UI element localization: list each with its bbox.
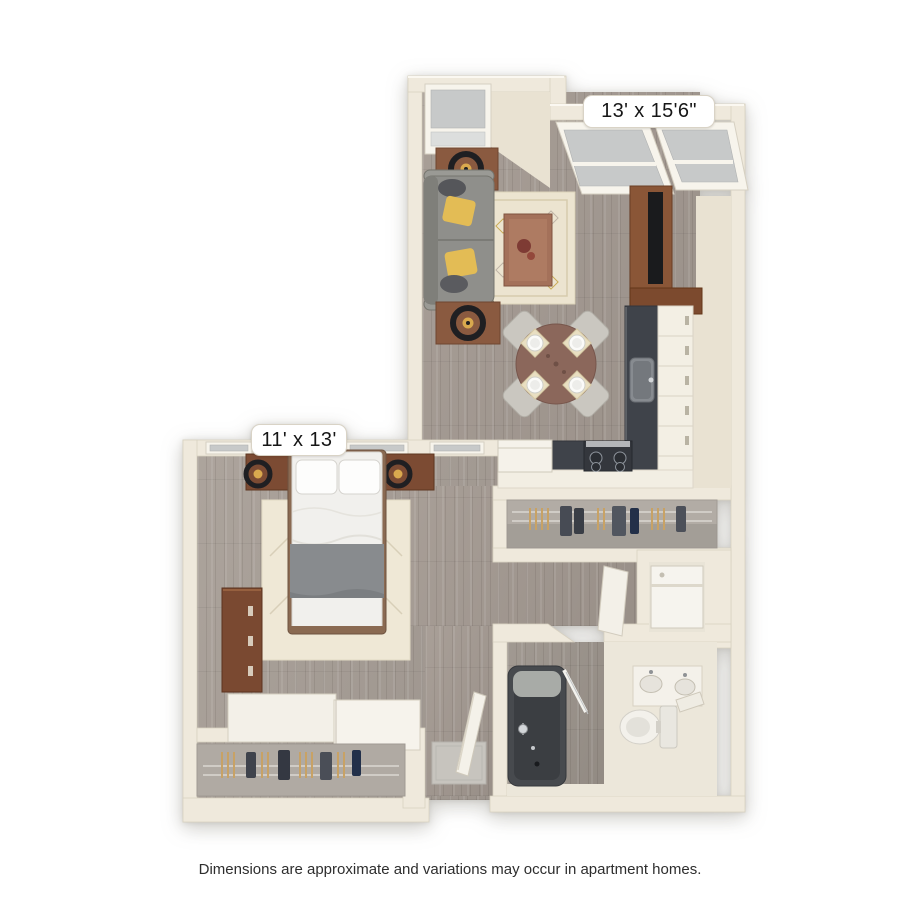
pillow-icon	[440, 275, 468, 293]
faucet-icon	[683, 673, 687, 677]
dimension-label-living: 13' x 15'6"	[583, 95, 715, 128]
tv-console	[630, 186, 702, 314]
floorplan-drawing	[0, 0, 900, 900]
sofa	[424, 170, 494, 310]
faucet-icon	[649, 670, 653, 674]
coffee-table	[504, 214, 552, 286]
fridge-icon	[498, 440, 552, 472]
hall-closet	[507, 500, 717, 548]
dimension-label-living-text: 13' x 15'6"	[601, 100, 697, 123]
vanity-sink	[633, 666, 704, 712]
plant-icon	[527, 252, 535, 260]
corner-window-left	[556, 122, 674, 194]
pillow-icon	[438, 179, 466, 197]
nightstand-left	[246, 454, 292, 490]
washer-dryer	[649, 562, 705, 632]
blanket	[290, 544, 384, 596]
entry	[432, 692, 486, 784]
pillow-icon	[339, 460, 380, 494]
dimension-label-bedroom-text: 11' x 13'	[261, 429, 336, 452]
pillow-icon	[296, 460, 337, 494]
kitchen-sink-icon	[630, 358, 654, 402]
disclaimer-text: Dimensions are approximate and variation…	[0, 861, 900, 878]
bed	[288, 450, 386, 634]
floorplan-page: 13' x 15'6" 11' x 13' Dimensions are app…	[0, 0, 900, 900]
stove-icon	[584, 441, 632, 472]
bathtub	[508, 666, 566, 786]
tv-icon	[648, 192, 663, 284]
dimension-label-bedroom: 11' x 13'	[251, 424, 347, 456]
side-table-bottom	[436, 302, 500, 344]
plant-icon	[517, 239, 531, 253]
closet-sliding-doors	[228, 694, 420, 750]
dresser	[222, 588, 262, 692]
floorplan: 13' x 15'6" 11' x 13'	[0, 0, 900, 900]
dining-set	[500, 308, 611, 419]
bedroom-closet	[197, 744, 405, 796]
shower-glass-icon	[564, 670, 588, 714]
alcove-window	[425, 84, 491, 154]
pillow-icon	[444, 248, 478, 279]
